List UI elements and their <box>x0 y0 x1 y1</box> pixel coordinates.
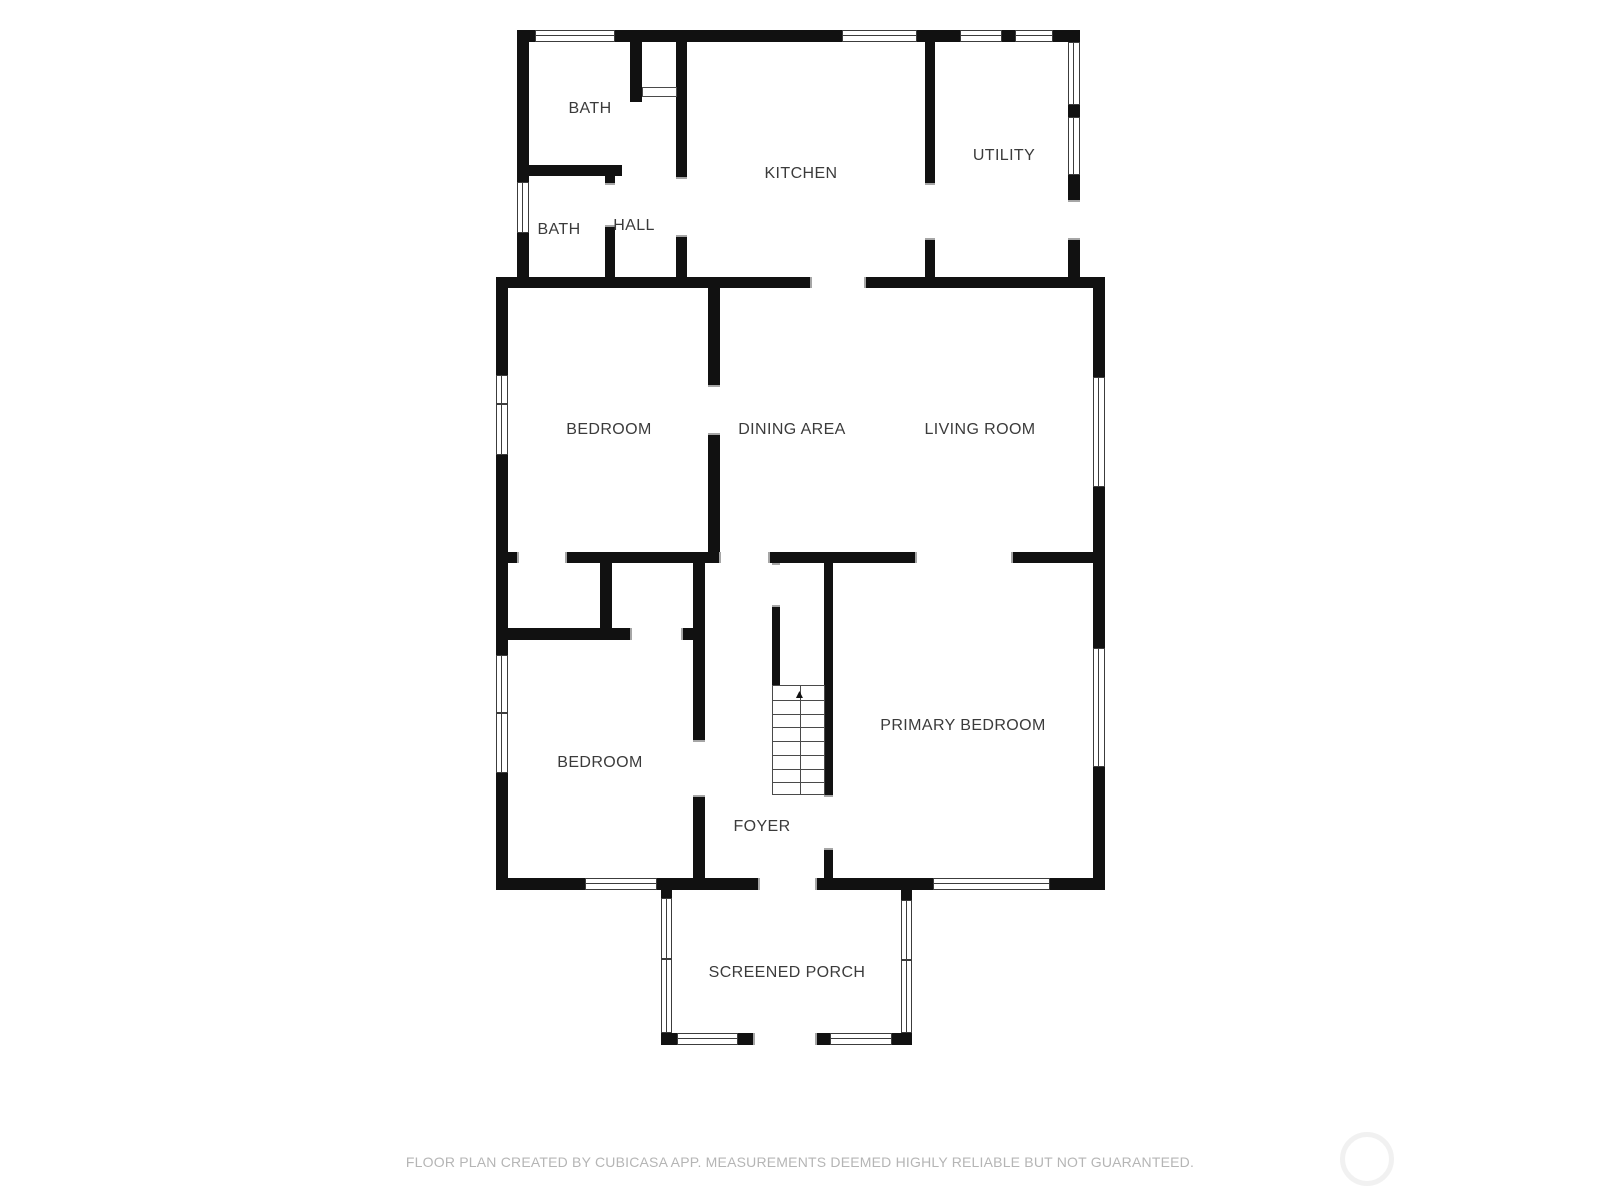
room-label-bedroom-middle: BEDROOM <box>566 421 651 439</box>
floor-plan: ▲BATHKITCHENUTILITYBATHHALLBEDROOMDINING… <box>0 0 1600 1200</box>
window <box>661 898 672 1033</box>
room-label-screened-porch: SCREENED PORCH <box>709 964 866 982</box>
stair-tread-line <box>773 755 824 756</box>
window <box>496 375 508 455</box>
wall <box>605 165 615 183</box>
window-glass-line <box>1016 35 1052 36</box>
stair-tread-line <box>773 769 824 770</box>
window <box>517 182 529 233</box>
wall <box>693 563 705 740</box>
window-glass-line <box>666 899 667 1032</box>
window <box>842 30 917 42</box>
wall <box>1068 240 1080 277</box>
window-glass-line <box>906 901 907 1032</box>
window-glass-line <box>1073 43 1074 104</box>
room-label-primary-bedroom: PRIMARY BEDROOM <box>880 717 1045 735</box>
window <box>496 655 508 773</box>
room-label-foyer: FOYER <box>733 818 790 836</box>
stair-top-door <box>772 563 780 607</box>
window <box>1015 30 1053 42</box>
wall <box>661 890 672 898</box>
room-label-hall: HALL <box>613 217 655 235</box>
wall <box>1093 288 1105 377</box>
wall <box>661 1033 677 1045</box>
window-glass-line <box>501 656 502 772</box>
wall <box>770 552 915 563</box>
closet-b-door <box>630 628 683 640</box>
wall <box>693 797 705 890</box>
foyer-porch-door <box>758 878 817 890</box>
wall <box>1053 30 1080 42</box>
window-glass-line <box>586 883 656 884</box>
stair-tread-line <box>773 727 824 728</box>
window-glass-line <box>1073 118 1074 174</box>
window-glass-line <box>501 376 502 454</box>
wall <box>630 42 642 102</box>
window <box>933 878 1050 890</box>
window <box>960 30 1002 42</box>
window-glass-line <box>1098 378 1099 486</box>
wall <box>496 552 517 563</box>
stair-tread-line <box>773 741 824 742</box>
wall <box>817 1033 830 1045</box>
window-glass-line <box>522 183 523 232</box>
window <box>1068 117 1080 175</box>
wall <box>1050 878 1105 890</box>
window <box>1093 377 1105 487</box>
utility-exterior-door <box>1068 200 1080 240</box>
stair-tread-line <box>773 714 824 715</box>
wall <box>496 773 508 890</box>
wall <box>824 563 833 795</box>
kitchen-dining-opening <box>810 277 866 288</box>
stair-center-line <box>800 686 801 794</box>
window <box>585 878 657 890</box>
stair-tread-line <box>773 782 824 783</box>
wall <box>708 435 720 552</box>
wall <box>892 1033 912 1045</box>
room-label-bath-lower: BATH <box>537 221 580 239</box>
window-mullion <box>497 712 507 714</box>
wall <box>517 42 529 182</box>
living-primary-opening <box>915 552 1013 563</box>
window-mullion <box>662 958 671 960</box>
kitchen-utility-door <box>925 183 935 240</box>
wall <box>1068 105 1080 117</box>
window-glass-line <box>678 1038 737 1039</box>
window <box>830 1033 892 1045</box>
stair-up-arrow-icon: ▲ <box>794 688 806 700</box>
wall <box>901 890 912 900</box>
wall <box>496 878 585 890</box>
wall <box>708 288 720 385</box>
wall <box>824 850 833 878</box>
room-label-dining-area: DINING AREA <box>738 421 846 439</box>
window-mullion <box>497 403 507 405</box>
window-glass-line <box>1098 649 1099 766</box>
closet-door-leaf <box>642 87 677 97</box>
window-glass-line <box>934 883 1049 884</box>
wall <box>657 878 758 890</box>
wall <box>1013 552 1105 563</box>
wall <box>917 30 960 42</box>
wall <box>496 455 508 552</box>
staircase: ▲ <box>772 685 825 795</box>
wall <box>772 607 780 685</box>
window <box>1068 42 1080 105</box>
wall <box>1093 487 1105 552</box>
bedroom-foyer-door <box>693 740 705 797</box>
wall <box>1002 30 1015 42</box>
dining-foyer-opening <box>719 552 770 563</box>
wall <box>738 1033 753 1045</box>
room-label-bath-upper: BATH <box>568 100 611 118</box>
window <box>1093 648 1105 767</box>
window-mullion <box>902 959 911 961</box>
wall <box>505 628 630 640</box>
wall <box>1093 767 1105 890</box>
window-glass-line <box>961 35 1001 36</box>
room-label-living-room: LIVING ROOM <box>924 421 1035 439</box>
watermark-circle <box>1340 1132 1394 1186</box>
wall <box>817 878 933 890</box>
wall <box>1093 563 1105 648</box>
hall-kitchen-door <box>676 177 687 237</box>
wall <box>866 277 1105 288</box>
bedroom-dining-opening <box>708 385 720 435</box>
window <box>677 1033 738 1045</box>
wall <box>615 30 842 42</box>
room-label-bedroom-lower: BEDROOM <box>557 754 642 772</box>
wall <box>1068 175 1080 200</box>
wall <box>925 42 935 183</box>
window-glass-line <box>536 35 614 36</box>
porch-exit-opening <box>753 1033 817 1045</box>
foyer-primary-door <box>824 795 833 850</box>
room-label-kitchen: KITCHEN <box>764 165 837 183</box>
window <box>535 30 615 42</box>
window-glass-line <box>831 1038 891 1039</box>
wall <box>496 563 508 655</box>
wall <box>496 288 508 375</box>
wall <box>496 277 810 288</box>
wall <box>567 552 719 563</box>
wall <box>517 30 535 42</box>
room-label-utility: UTILITY <box>973 147 1035 165</box>
window <box>901 900 912 1033</box>
window-glass-line <box>843 35 916 36</box>
wall <box>517 233 529 277</box>
wall <box>676 42 687 177</box>
closet-a-door <box>517 552 567 563</box>
